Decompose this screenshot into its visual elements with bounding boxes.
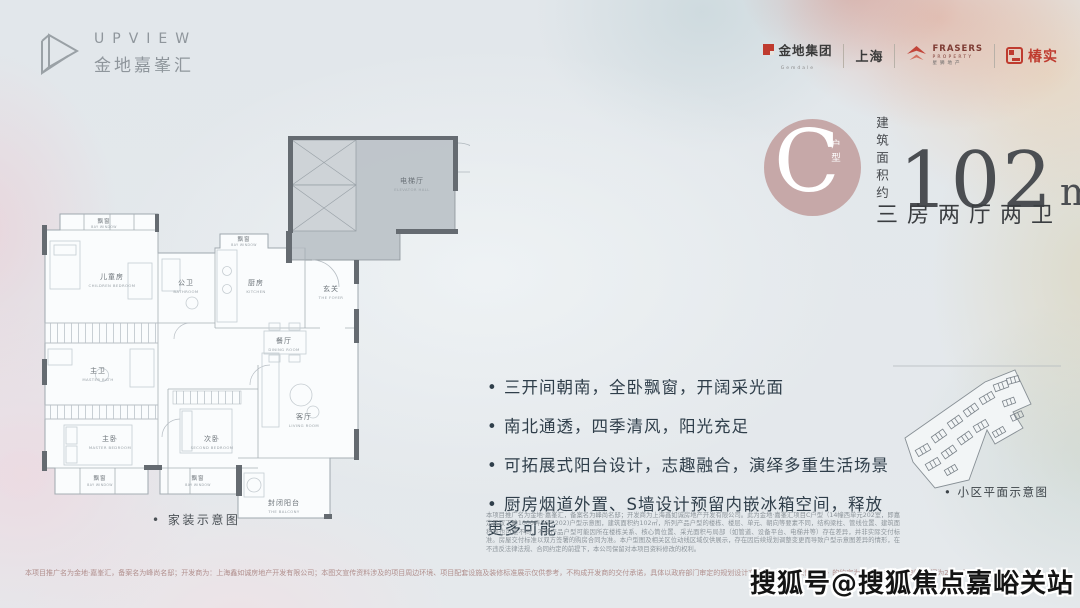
room-label: 餐厅 bbox=[276, 336, 292, 345]
room-label-en: MASTER BATH bbox=[82, 377, 113, 382]
unit-type-label: 户型 bbox=[827, 139, 841, 166]
upview-prism-icon bbox=[36, 30, 82, 76]
brand-logo: UPVIEW 金地嘉峯汇 bbox=[36, 30, 197, 76]
divider bbox=[894, 44, 895, 68]
frasers-logo: FRASERS PROPERTY 星狮地产 bbox=[906, 45, 983, 66]
room-label-en: BAY WINDOW bbox=[87, 483, 113, 487]
room-label: 儿童房 bbox=[100, 272, 124, 281]
feature-item: 南北通透，四季清风，阳光充足 bbox=[487, 413, 891, 437]
room-label-en: ELEVATOR HALL bbox=[394, 187, 430, 192]
room-label-en: BAY WINDOW bbox=[231, 243, 257, 247]
room-label-en: BAY WINDOW bbox=[185, 483, 211, 487]
room-label-en: DINING ROOM bbox=[268, 347, 299, 352]
unit-type-badge: C 户型 bbox=[764, 119, 861, 216]
floor-plan-caption: 家装示意图 bbox=[152, 511, 240, 528]
feature-item: 三开间朝南，全卧飘窗，开阔采光面 bbox=[487, 374, 891, 398]
feature-item: 可拓展式阳台设计，志趣融合，演绎多重生活场景 bbox=[487, 452, 891, 476]
room-label-en: KITCHEN bbox=[246, 289, 265, 294]
floor-plan: 飘窗 BAY WINDOW 儿童房 CHILDREN BEDROOM 公卫 BA… bbox=[40, 113, 470, 533]
gemdale-sub: Gemdale bbox=[781, 66, 815, 71]
room-label: 飘窗 bbox=[97, 217, 110, 225]
frasers-chevron-icon bbox=[906, 45, 927, 66]
room-label-en: BAY WINDOW bbox=[91, 225, 117, 229]
room-label: 电梯厅 bbox=[400, 176, 424, 185]
room-label: 次卧 bbox=[204, 434, 220, 443]
room-label: 飘窗 bbox=[237, 235, 250, 243]
disclaimer-text: 本项目推广名为金地·嘉峯汇，备案名为峰尚名邸；开发商为上海鑫如诚房地产开发有限公… bbox=[486, 512, 900, 554]
logo-name: UPVIEW bbox=[94, 31, 197, 47]
room-label-en: SECOND BEDROOM bbox=[191, 445, 234, 450]
unit-layout: 三房两厅两卫 bbox=[876, 197, 1062, 229]
room-label: 公卫 bbox=[178, 279, 194, 287]
shanghai-logo: 上海 bbox=[855, 46, 883, 65]
chunshi-seal-icon bbox=[1006, 47, 1023, 64]
room-label-en: LIVING ROOM bbox=[289, 423, 319, 428]
room-label: 厨房 bbox=[248, 278, 264, 287]
chunshi-logo: 椿实 bbox=[1006, 46, 1058, 66]
room-label: 客厅 bbox=[296, 412, 312, 421]
room-label-en: THE BALCONY bbox=[267, 509, 300, 514]
room-label: 主卧 bbox=[102, 434, 118, 443]
watermark: 搜狐号@搜狐焦点嘉峪关站 bbox=[750, 563, 1074, 600]
gemdale-logo: 金地集团 Gemdale bbox=[763, 40, 832, 71]
logo-cn: 金地嘉峯汇 bbox=[94, 51, 197, 76]
partner-logos: 金地集团 Gemdale 上海 FRASERS PROPERTY 星狮地产 bbox=[763, 40, 1058, 71]
room-label: 封闭阳台 bbox=[268, 498, 300, 507]
gemdale-label: 金地集团 bbox=[778, 40, 832, 59]
area-unit: m2 bbox=[1060, 170, 1080, 214]
divider bbox=[994, 44, 995, 68]
room-label-en: MASTER BEDROOM bbox=[89, 445, 131, 450]
divider bbox=[843, 44, 844, 68]
room-label: 玄关 bbox=[323, 284, 339, 293]
room-label: 飘窗 bbox=[93, 474, 106, 482]
room-label-en: BATHROOM bbox=[173, 289, 198, 294]
room-label: 主卫 bbox=[90, 366, 106, 375]
room-label: 飘窗 bbox=[191, 474, 204, 482]
site-plan-caption: 小区平面示意图 bbox=[944, 484, 1048, 500]
gemdale-icon bbox=[763, 44, 774, 55]
room-label-en: CHILDREN BEDROOM bbox=[89, 283, 136, 288]
poster: UPVIEW 金地嘉峯汇 金地集团 Gemdale 上海 FRA bbox=[0, 0, 1080, 608]
room-label-en: THE FOYER bbox=[318, 295, 344, 300]
